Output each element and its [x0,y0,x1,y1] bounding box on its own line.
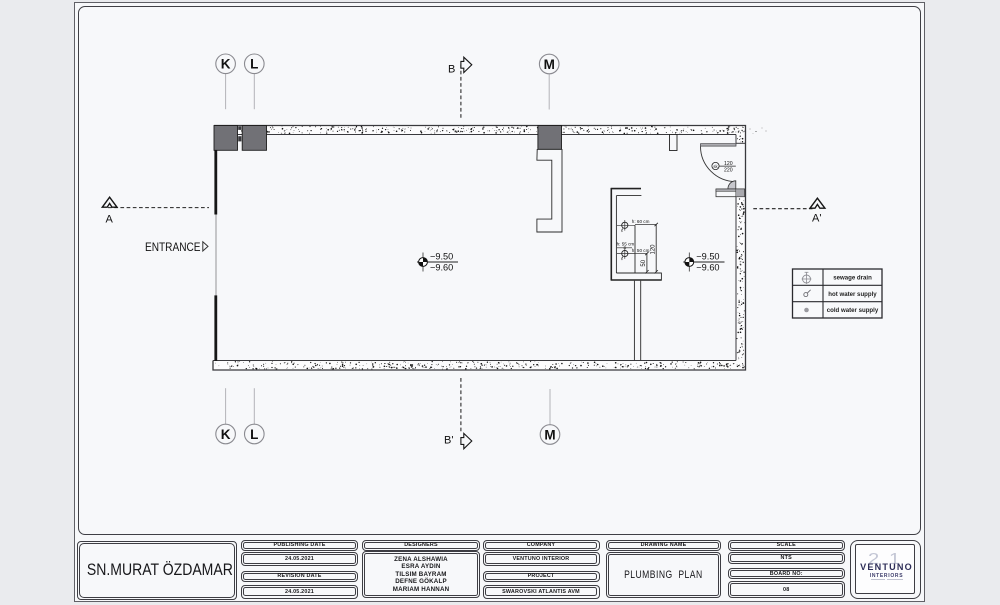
svg-text:hot water supply: hot water supply [828,291,877,298]
svg-text:h: 55 cm: h: 55 cm [617,241,635,246]
svg-text:ENTRANCE: ENTRANCE [145,240,201,254]
svg-text:K: K [221,57,231,72]
svg-text:120: 120 [650,244,656,255]
svg-text:L: L [250,427,258,442]
svg-text:M: M [544,427,555,442]
svg-text:B: B [448,64,455,76]
svg-text:220: 220 [724,168,733,174]
svg-text:120: 120 [724,161,733,167]
svg-text:50: 50 [641,259,647,266]
svg-text:cold water supply: cold water supply [827,307,879,314]
svg-text:A: A [106,214,114,226]
svg-text:K: K [221,427,231,442]
svg-text:−9.50: −9.50 [696,252,719,262]
svg-text:−9.60: −9.60 [430,262,453,272]
svg-text:A': A' [812,213,821,225]
svg-text:h: 60 cm: h: 60 cm [632,219,650,224]
svg-text:−9.50: −9.50 [430,252,453,262]
svg-text:−9.60: −9.60 [696,262,719,272]
svg-text:sewage drain: sewage drain [833,275,872,282]
svg-text:M: M [544,57,555,72]
svg-text:B': B' [444,435,453,447]
svg-text:h: 50 cm: h: 50 cm [632,248,650,253]
svg-text:L: L [250,57,258,72]
